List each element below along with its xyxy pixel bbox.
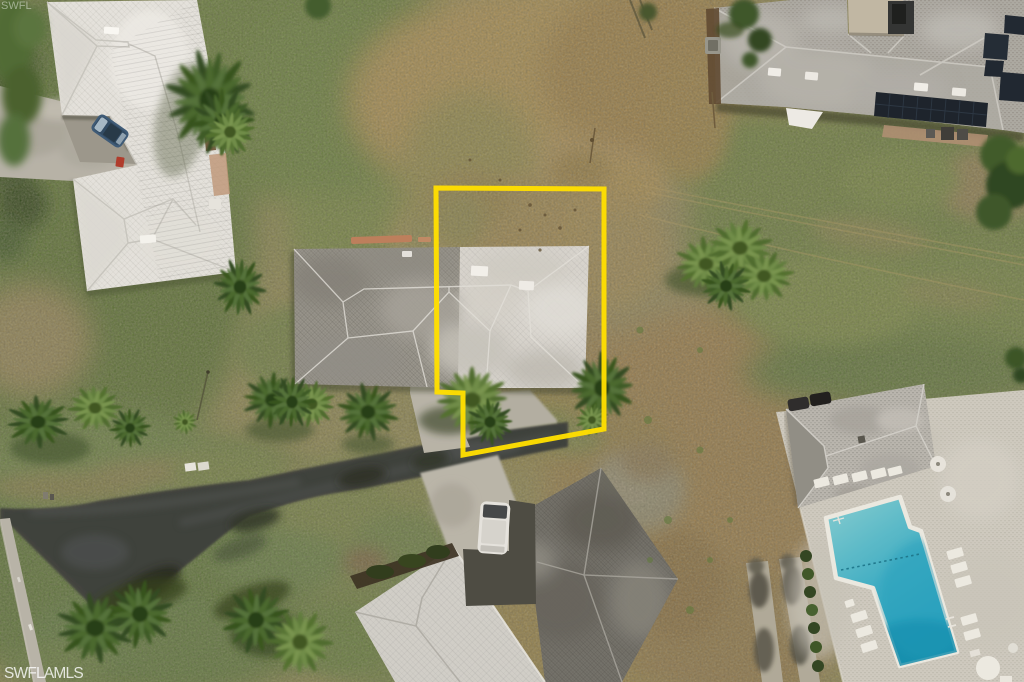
svg-text:SWFL: SWFL: [1, 0, 32, 12]
svg-text:SWFLAMLS: SWFLAMLS: [4, 665, 83, 682]
